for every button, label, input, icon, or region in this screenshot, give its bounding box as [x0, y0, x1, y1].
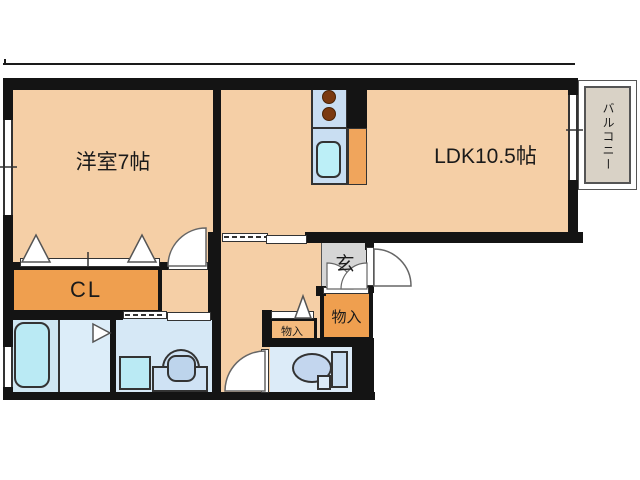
balcony-window — [568, 95, 578, 180]
wall — [212, 310, 221, 400]
toilet-tank — [331, 351, 348, 388]
kitchen-sink-icon — [316, 141, 341, 178]
wall — [305, 232, 583, 243]
entry-door-arc — [374, 249, 411, 286]
kitchen-side-cabinet — [348, 128, 367, 185]
wall — [3, 90, 13, 120]
toilet-seat-box — [317, 375, 331, 390]
window — [3, 347, 13, 387]
ldk-sliding-door — [222, 233, 268, 242]
wall — [3, 78, 578, 90]
label-closet: CL — [10, 277, 162, 303]
label-entrance: 玄 — [321, 249, 369, 276]
washing-machine-icon — [119, 356, 151, 390]
washroom-sliding-door — [123, 311, 167, 319]
wall — [110, 318, 116, 394]
label-storage-large: 物入 — [320, 306, 373, 327]
wall — [568, 78, 578, 95]
window — [3, 120, 13, 215]
wall — [3, 310, 123, 320]
vanity-bowl — [167, 355, 196, 382]
wall — [262, 338, 353, 347]
label-western-room: 洋室7帖 — [38, 146, 188, 176]
storage-large-door-track — [323, 287, 369, 294]
label-balcony: バルコニー — [584, 92, 631, 182]
wall — [208, 232, 221, 320]
stove-burner-icon — [322, 107, 336, 121]
floor-plan: 洋室7帖 LDK10.5帖 CL 玄 物入 物入 バルコニー — [0, 0, 640, 480]
property-line-cap — [4, 59, 6, 65]
closet-door-track — [20, 258, 160, 267]
wall — [3, 392, 375, 400]
storage-small-door-track — [271, 311, 314, 319]
wall — [213, 90, 221, 232]
ldk-sliding-door — [266, 235, 307, 244]
washroom-sliding-door — [167, 312, 211, 321]
label-ldk: LDK10.5帖 — [408, 140, 563, 170]
kitchen-counter-divider — [311, 127, 348, 129]
property-line — [3, 63, 575, 65]
room-powder — [60, 318, 110, 392]
stove-burner-icon — [322, 90, 336, 104]
label-storage-small: 物入 — [267, 323, 317, 339]
wall — [352, 338, 374, 400]
western-room-door-leaf — [168, 262, 208, 270]
toilet-door-leaf — [261, 349, 269, 393]
bathtub-icon — [14, 322, 50, 388]
